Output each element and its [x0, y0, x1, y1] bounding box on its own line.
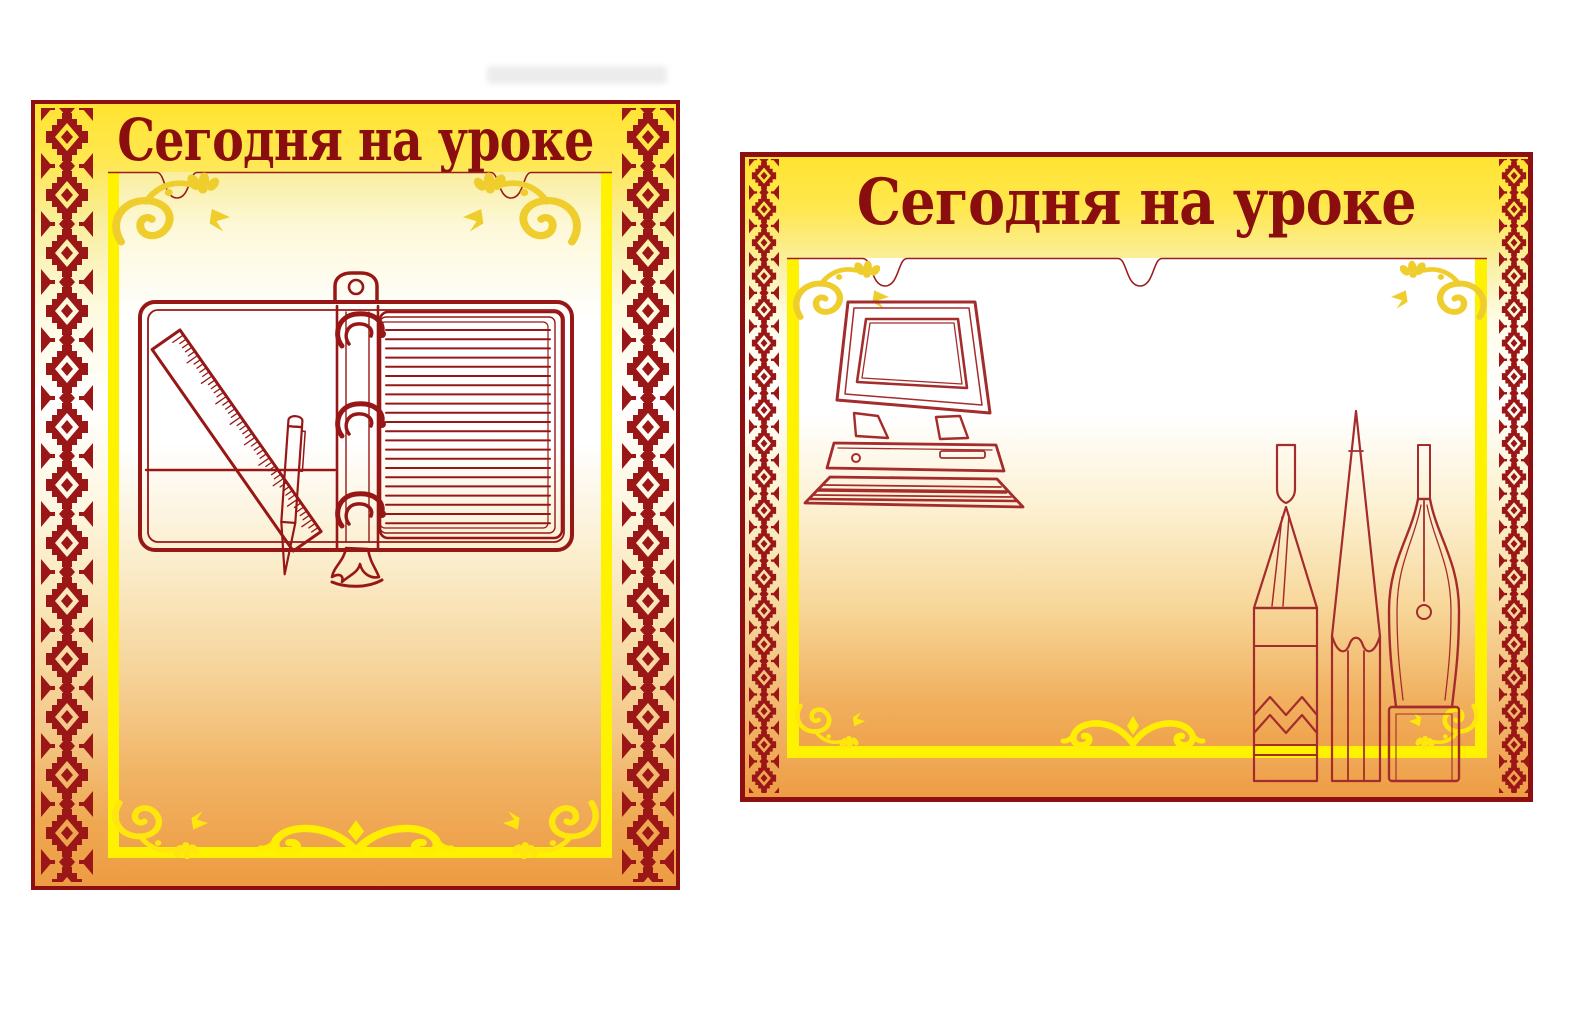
- fountain-pen-nib-icon: [1389, 445, 1459, 781]
- desktop-computer-icon: [790, 285, 1030, 515]
- ring-binder-notebook-icon: [136, 266, 576, 598]
- corner-flourish-icon: [795, 702, 865, 748]
- title-text: Сегодня на уроке: [117, 106, 593, 174]
- writing-tools-icon: [1240, 403, 1472, 783]
- pen-icon: [1254, 445, 1317, 781]
- corner-flourish-icon: [503, 798, 599, 858]
- bottom-center-ornament-icon: [261, 818, 451, 856]
- corner-flourish-icon: [1391, 262, 1487, 322]
- corner-flourish-icon: [112, 174, 230, 248]
- stand-panel-landscape: Сегодня на уроке: [740, 152, 1533, 802]
- ruled-lines: [386, 330, 550, 523]
- ornament-border-right-icon: [622, 108, 674, 882]
- ornament-border-left-icon: [749, 159, 779, 793]
- corner-flourish-icon: [112, 798, 208, 858]
- faint-watermark-smudge: [487, 66, 667, 84]
- title-text: Сегодня на уроке: [857, 165, 1416, 240]
- page-title: Сегодня на уроке: [745, 165, 1528, 240]
- ornament-border-left-icon: [41, 108, 93, 882]
- page-title: Сегодня на уроке: [35, 106, 676, 174]
- corner-flourish-icon: [463, 174, 581, 248]
- bottom-center-ornament-icon: [1063, 714, 1203, 748]
- poster-canvas: { "page": { "background_color": "#FFFFFF…: [0, 0, 1580, 1020]
- stand-panel-portrait: Сегодня на уроке: [31, 100, 680, 890]
- ornament-border-right-icon: [1499, 159, 1529, 793]
- pencil-icon: [1332, 411, 1380, 781]
